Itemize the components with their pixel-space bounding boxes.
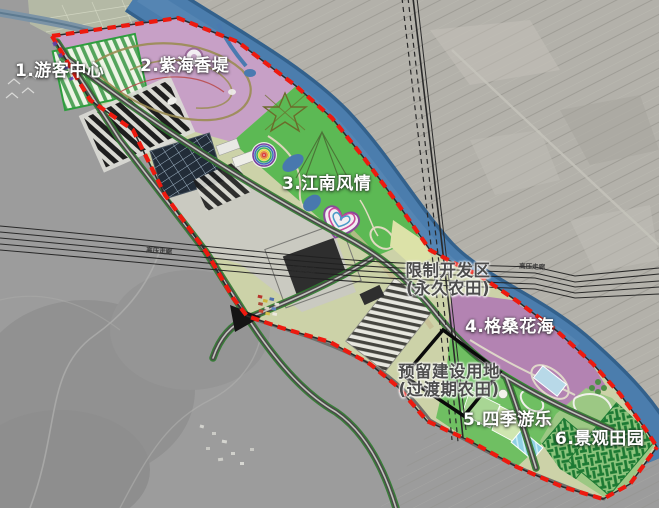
reserved-area-line1: 预留建设用地 [375, 363, 523, 381]
zone-label-flower-sea: 4.格桑花海 [465, 318, 554, 338]
zone-label-visitor-center: 1.游客中心 [15, 62, 104, 82]
site-plan-map: 高压走廊 高压走廊 高压走廊 1.游客中心 2.紫海香堤 3.江南风情 4.格桑… [0, 0, 659, 508]
zone-label-jiangnan: 3.江南风情 [282, 175, 371, 195]
zone-label-landscape-fields: 6.景观田园 [555, 430, 644, 450]
rainbow-spiral-icon [251, 142, 277, 168]
reserved-area-line2: (过渡期农田) [375, 381, 523, 399]
restricted-area-label: 限制开发区 (永久农田) [381, 262, 515, 299]
corridor-label: 高压走廊 [290, 264, 317, 275]
restricted-area-line2: (永久农田) [381, 280, 515, 298]
restricted-area-line1: 限制开发区 [381, 262, 515, 280]
zone-label-purple-sea: 2.紫海香堤 [140, 57, 229, 77]
zone-label-four-seasons: 5.四季游乐 [463, 411, 552, 431]
corridor-label: 高压走廊 [519, 261, 546, 271]
reserved-area-label: 预留建设用地 (过渡期农田) [375, 363, 523, 400]
